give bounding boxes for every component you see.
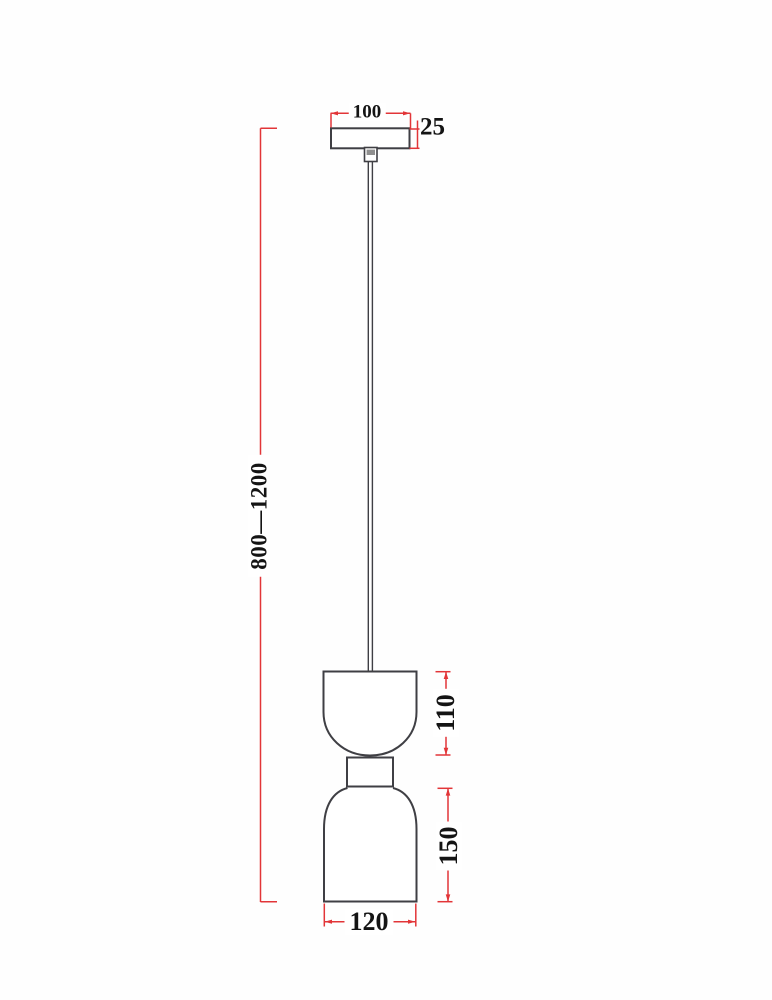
label-upper-shade-height: 110 [433, 689, 459, 737]
upper-shade [324, 672, 417, 756]
label-shade-diameter: 120 [345, 909, 394, 935]
suspension-cable [368, 159, 372, 673]
label-canopy-width: 100 [349, 103, 386, 122]
label-canopy-height: 25 [420, 115, 445, 140]
label-lower-shade-height: 150 [436, 822, 462, 871]
lower-shade [324, 788, 417, 902]
cable-gland [365, 148, 378, 162]
drawing-linework [0, 0, 772, 1000]
label-cable-length: 800—1200 [248, 455, 271, 577]
neck-ring [347, 758, 393, 787]
ceiling-canopy [331, 128, 410, 148]
pendant-lamp-dimension-drawing: 100 25 800—1200 110 150 120 [0, 0, 772, 1000]
